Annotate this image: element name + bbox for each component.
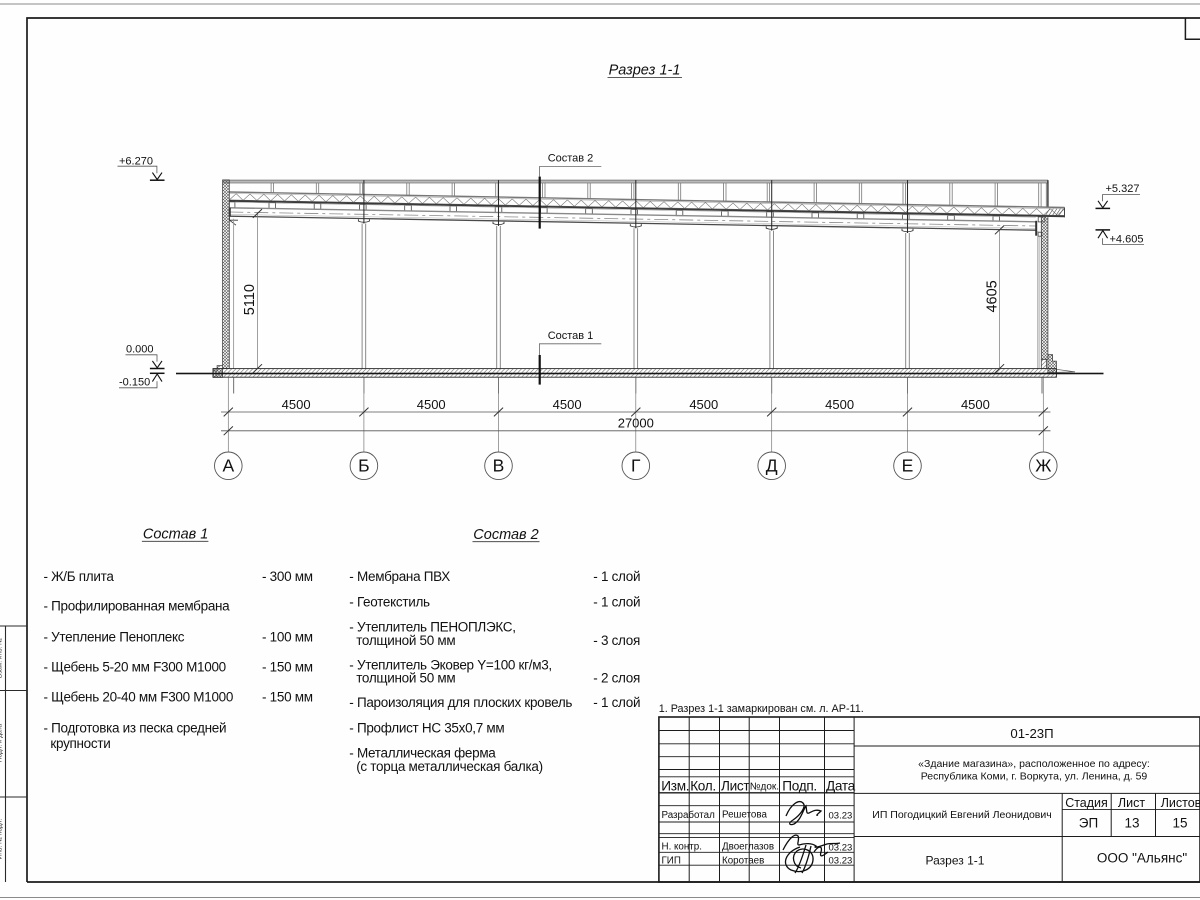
svg-text:- Мембрана ПВХ: - Мембрана ПВХ	[349, 569, 450, 584]
svg-text:- 3 слоя: - 3 слоя	[593, 633, 640, 648]
svg-text:03.23: 03.23	[829, 856, 853, 867]
svg-text:03.23: 03.23	[829, 811, 853, 822]
svg-text:толщиной 50 мм: толщиной 50 мм	[349, 633, 455, 648]
svg-text:+5.327: +5.327	[1106, 183, 1140, 195]
svg-text:(с торца металлическая балка): (с торца металлическая балка)	[349, 759, 543, 774]
svg-text:толщиной 50 мм: толщиной 50 мм	[349, 671, 455, 686]
svg-text:- Пароизоляция для плоских кро: - Пароизоляция для плоских кровель	[349, 695, 572, 710]
svg-text:Листов: Листов	[1161, 796, 1200, 810]
svg-text:Подп. и дата: Подп. и дата	[0, 723, 4, 762]
svg-text:- 2 слоя: - 2 слоя	[593, 671, 640, 686]
svg-text:- 1 слой: - 1 слой	[593, 695, 640, 710]
svg-text:+6.270: +6.270	[119, 155, 153, 167]
svg-text:- Ж/Б плита: - Ж/Б плита	[44, 569, 115, 584]
svg-text:Разработал: Разработал	[662, 810, 716, 821]
svg-text:Д: Д	[766, 456, 778, 476]
svg-text:- 150 мм: - 150 мм	[262, 689, 313, 704]
svg-text:4500: 4500	[961, 397, 990, 412]
svg-text:0.000: 0.000	[126, 343, 154, 355]
svg-text:ГИП: ГИП	[662, 855, 681, 866]
svg-text:Разрез 1-1: Разрез 1-1	[926, 853, 985, 867]
svg-text:Изм.: Изм.	[661, 778, 689, 793]
svg-text:Республика Коми, г. Воркута, у: Республика Коми, г. Воркута, ул. Ленина,…	[921, 771, 1148, 783]
svg-text:5110: 5110	[242, 284, 258, 315]
svg-text:4500: 4500	[282, 397, 311, 412]
svg-text:- 300 мм: - 300 мм	[262, 569, 313, 584]
svg-text:Подп.: Подп.	[782, 778, 817, 793]
svg-text:Кол.: Кол.	[690, 778, 716, 793]
svg-text:Г: Г	[631, 456, 641, 476]
svg-text:Состав 2: Состав 2	[473, 527, 538, 543]
svg-text:ЭП: ЭП	[1079, 816, 1098, 831]
svg-text:1. Разрез 1-1 замаркирован см.: 1. Разрез 1-1 замаркирован см. л. АР-11.	[659, 703, 864, 715]
svg-text:Е: Е	[902, 456, 914, 476]
svg-text:крупности: крупности	[44, 736, 111, 751]
svg-text:Состав 1: Состав 1	[143, 526, 208, 542]
svg-text:15: 15	[1172, 816, 1187, 831]
svg-text:ООО "Альянс": ООО "Альянс"	[1097, 850, 1187, 865]
svg-text:4500: 4500	[417, 397, 446, 412]
svg-text:Состав 1: Состав 1	[548, 330, 594, 342]
svg-text:В: В	[493, 456, 505, 476]
svg-text:Взам. инв. №: Взам. инв. №	[0, 638, 4, 678]
svg-text:Решетова: Решетова	[722, 809, 767, 820]
svg-text:Состав 2: Состав 2	[548, 153, 594, 165]
svg-text:- Щебень 20-40 мм F300 М1000: - Щебень 20-40 мм F300 М1000	[44, 689, 234, 704]
svg-text:01-23П: 01-23П	[1010, 726, 1053, 741]
svg-text:«Здание магазина», расположенн: «Здание магазина», расположенное по адре…	[918, 758, 1150, 770]
svg-text:- Профлист НС 35х0,7 мм: - Профлист НС 35х0,7 мм	[349, 720, 504, 735]
svg-text:4500: 4500	[553, 397, 582, 412]
svg-text:- Профилированная мембрана: - Профилированная мембрана	[44, 599, 231, 614]
svg-text:- Щебень 5-20 мм F300 М1000: - Щебень 5-20 мм F300 М1000	[44, 659, 226, 674]
svg-text:Разрез 1-1: Разрез 1-1	[609, 63, 681, 79]
svg-text:Дата: Дата	[826, 778, 856, 793]
svg-text:- Подготовка из песка средней: - Подготовка из песка средней	[44, 721, 227, 736]
svg-text:Стадия: Стадия	[1065, 796, 1108, 810]
svg-text:27000: 27000	[618, 416, 654, 431]
svg-text:Коротаев: Коротаев	[722, 855, 764, 866]
svg-text:№док.: №док.	[750, 782, 779, 793]
svg-text:А: А	[222, 456, 234, 476]
svg-text:Н. контр.: Н. контр.	[662, 841, 702, 852]
svg-text:- 1 слой: - 1 слой	[593, 594, 640, 609]
svg-text:13: 13	[1124, 816, 1139, 831]
svg-text:Лист: Лист	[721, 778, 749, 793]
svg-text:Б: Б	[358, 456, 369, 476]
svg-text:- Геотекстиль: - Геотекстиль	[349, 594, 430, 609]
svg-text:- 100 мм: - 100 мм	[262, 629, 313, 644]
svg-text:4500: 4500	[689, 397, 718, 412]
svg-text:4500: 4500	[825, 397, 854, 412]
svg-text:-0.150: -0.150	[119, 376, 150, 388]
svg-text:Ж: Ж	[1035, 456, 1051, 476]
svg-text:Инв. № подл.: Инв. № подл.	[0, 819, 4, 860]
svg-text:Лист: Лист	[1118, 796, 1145, 810]
svg-text:- 150 мм: - 150 мм	[262, 659, 313, 674]
svg-text:+4.605: +4.605	[1110, 234, 1144, 246]
svg-text:Двоеглазов: Двоеглазов	[722, 841, 774, 852]
svg-text:4605: 4605	[985, 280, 1001, 312]
svg-text:- 1 слой: - 1 слой	[593, 569, 640, 584]
svg-text:ИП Погодицкий Евгений Леонидов: ИП Погодицкий Евгений Леонидович	[872, 809, 1051, 821]
svg-text:- Утепление Пеноплекс: - Утепление Пеноплекс	[44, 629, 185, 644]
